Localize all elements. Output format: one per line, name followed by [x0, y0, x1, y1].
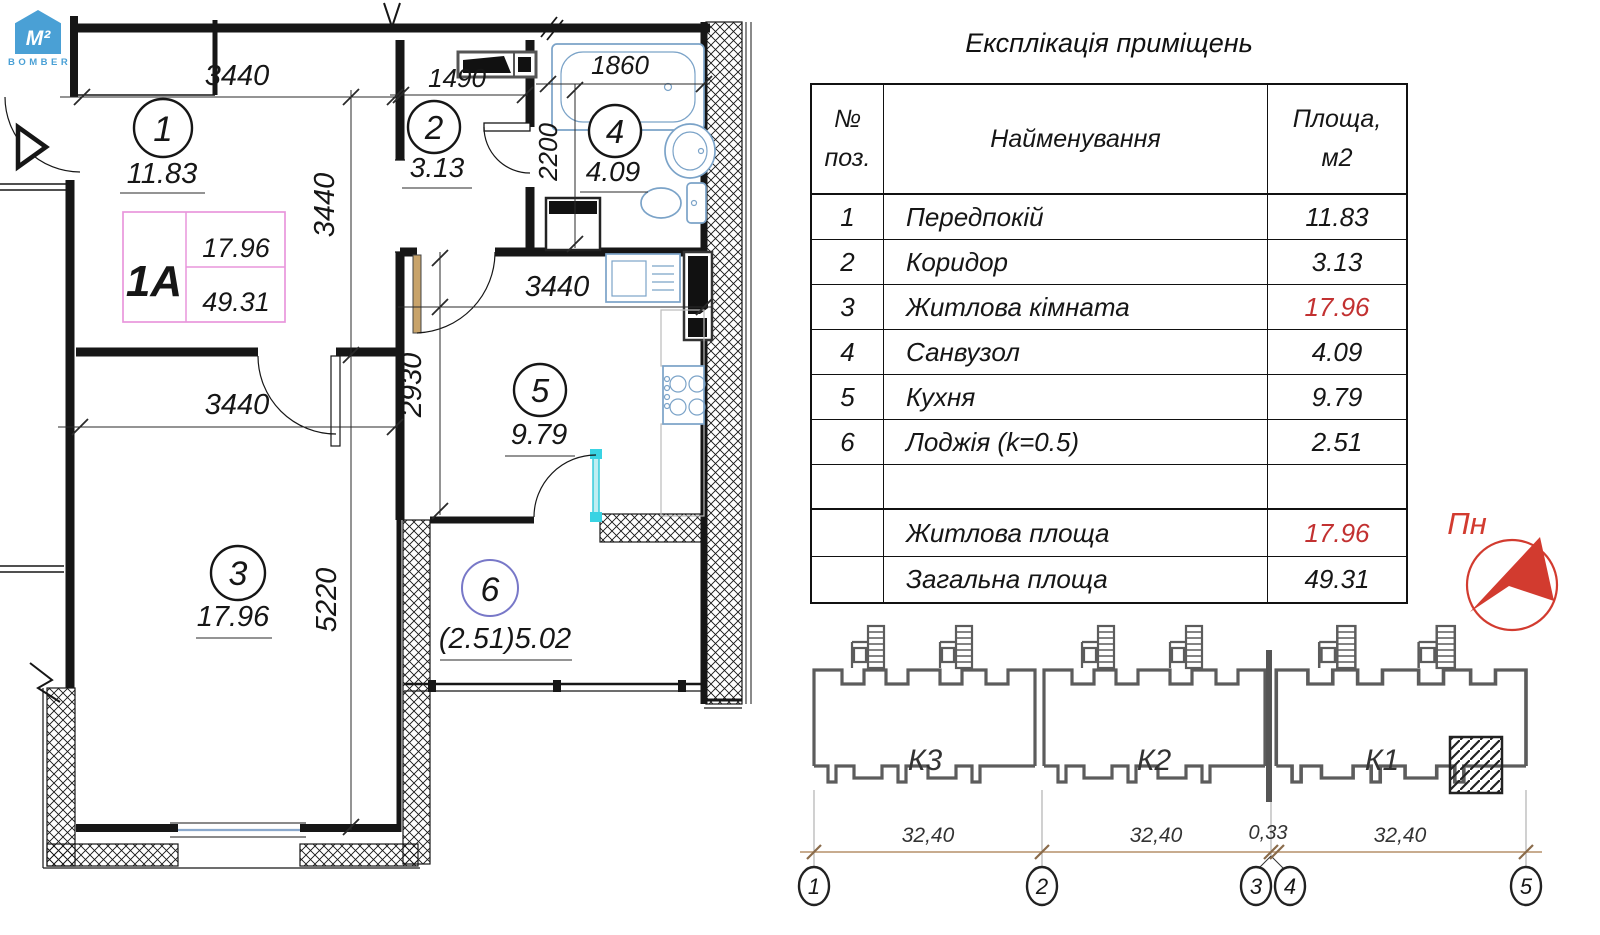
dim-living-width: 3440: [205, 389, 270, 421]
explication-title: Експлікація приміщень: [810, 28, 1408, 59]
section-dim-joint: 0,33: [1249, 822, 1288, 844]
row-area: 9.79: [1268, 375, 1406, 420]
col-header-name: Найменування: [884, 85, 1268, 195]
row-area: 2.51: [1268, 420, 1406, 465]
room-labels: 1 11.83 2 3.13 4 4.09: [120, 99, 648, 660]
explication-table: №поз. Найменування Площа,м2 1 Передпокій…: [810, 83, 1408, 604]
section-dim-2: 32,40: [1130, 824, 1183, 847]
entrance-arrow-icon: [18, 127, 46, 167]
north-label: Пн: [1447, 506, 1487, 541]
row-num: 3: [812, 285, 884, 330]
row-name: [884, 465, 1268, 510]
dim-bath-height: 2200: [533, 123, 563, 182]
blueprint-page: M² BOMBER: [0, 0, 1600, 935]
expansion-joint: [1266, 650, 1272, 802]
row-num: 2: [812, 240, 884, 285]
apartment-location-marker: [1450, 737, 1502, 793]
logo-house-icon: M²: [15, 10, 61, 54]
axis-markers: 1 2 3 4 5: [799, 867, 1541, 905]
row-name: Лоджія (k=0.5): [884, 420, 1268, 465]
svg-text:5: 5: [531, 372, 550, 409]
block-k2-label: К2: [1137, 744, 1172, 777]
row-area: 49.31: [1268, 557, 1406, 602]
dim-kitchen-height: 2930: [396, 353, 428, 419]
col-header-position: №поз.: [812, 85, 884, 195]
row-name: Передпокій: [884, 195, 1268, 240]
row-name: Коридор: [884, 240, 1268, 285]
dim-kitchen-width: 3440: [525, 271, 590, 303]
svg-text:2: 2: [424, 109, 443, 146]
dim-corridor-width: 1490: [428, 63, 486, 93]
svg-text:4.09: 4.09: [586, 156, 641, 187]
room-2-label: 2 3.13: [402, 101, 472, 188]
row-area: 17.96: [1268, 285, 1406, 330]
svg-text:1: 1: [808, 874, 820, 899]
north-arrow: Пн: [1447, 506, 1557, 630]
dim-bath-width: 1860: [591, 50, 649, 80]
section-dim-1: 32,40: [902, 824, 955, 847]
dim-hall-width: 3440: [205, 60, 270, 92]
room-1-label: 1 11.83: [120, 99, 205, 193]
svg-text:3: 3: [229, 555, 248, 593]
row-area: 4.09: [1268, 330, 1406, 375]
north-pointer-icon: [1470, 537, 1554, 612]
floor-plan: 3440 1490 1860 2200 3440 5220 3440 2: [0, 3, 751, 868]
apartment-badge: 1A 17.96 49.31: [123, 212, 285, 322]
row-num: [812, 557, 884, 602]
svg-text:1: 1: [153, 110, 172, 149]
row-num: 5: [812, 375, 884, 420]
room-3-label: 3 17.96: [196, 546, 272, 638]
apartment-type: 1A: [126, 257, 182, 306]
svg-text:17.96: 17.96: [197, 601, 270, 633]
apartment-living-area: 17.96: [202, 233, 271, 263]
row-area: [1268, 465, 1406, 510]
row-area: 3.13: [1268, 240, 1406, 285]
loggia-door-leaf: [593, 455, 599, 517]
svg-text:3.13: 3.13: [410, 152, 465, 183]
svg-text:11.83: 11.83: [127, 158, 197, 190]
dim-living-height: 5220: [311, 568, 343, 633]
row-name: Житлова площа: [884, 510, 1268, 557]
block-k1-label: К1: [1365, 744, 1399, 777]
section-schematic: К3 К2 К1 32,40 32,40 0,33 32,40 1 2 3 4 …: [799, 626, 1542, 905]
svg-text:4: 4: [1284, 874, 1296, 899]
svg-text:4: 4: [606, 113, 624, 150]
dim-hall-height: 3440: [309, 173, 341, 238]
svg-text:6: 6: [481, 571, 500, 609]
svg-text:5: 5: [1520, 874, 1533, 899]
row-num: 4: [812, 330, 884, 375]
row-area: 17.96: [1268, 510, 1406, 557]
svg-text:2: 2: [1035, 874, 1048, 899]
row-num: 6: [812, 420, 884, 465]
svg-text:(2.51)5.02: (2.51)5.02: [439, 623, 571, 655]
room-6-label: 6 (2.51)5.02: [439, 560, 572, 660]
svg-text:3: 3: [1250, 874, 1263, 899]
row-num: 1: [812, 195, 884, 240]
row-name: Санвузол: [884, 330, 1268, 375]
logo-mark: M²: [26, 24, 51, 54]
developer-logo: M² BOMBER: [8, 10, 68, 68]
col-header-area: Площа,м2: [1268, 85, 1406, 195]
row-area: 11.83: [1268, 195, 1406, 240]
row-name: Житлова кімната: [884, 285, 1268, 330]
doors: [5, 97, 602, 522]
row-num: [812, 465, 884, 510]
apartment-total-area: 49.31: [202, 287, 270, 317]
room-5-label: 5 9.79: [505, 364, 575, 456]
section-dim-3: 32,40: [1374, 824, 1427, 847]
row-name: Загальна площа: [884, 557, 1268, 602]
logo-brand: BOMBER: [8, 57, 68, 68]
row-name: Кухня: [884, 375, 1268, 420]
block-k3-label: К3: [908, 744, 943, 777]
row-num: [812, 510, 884, 557]
kitchen-door-leaf: [413, 255, 421, 333]
svg-text:9.79: 9.79: [511, 419, 567, 451]
